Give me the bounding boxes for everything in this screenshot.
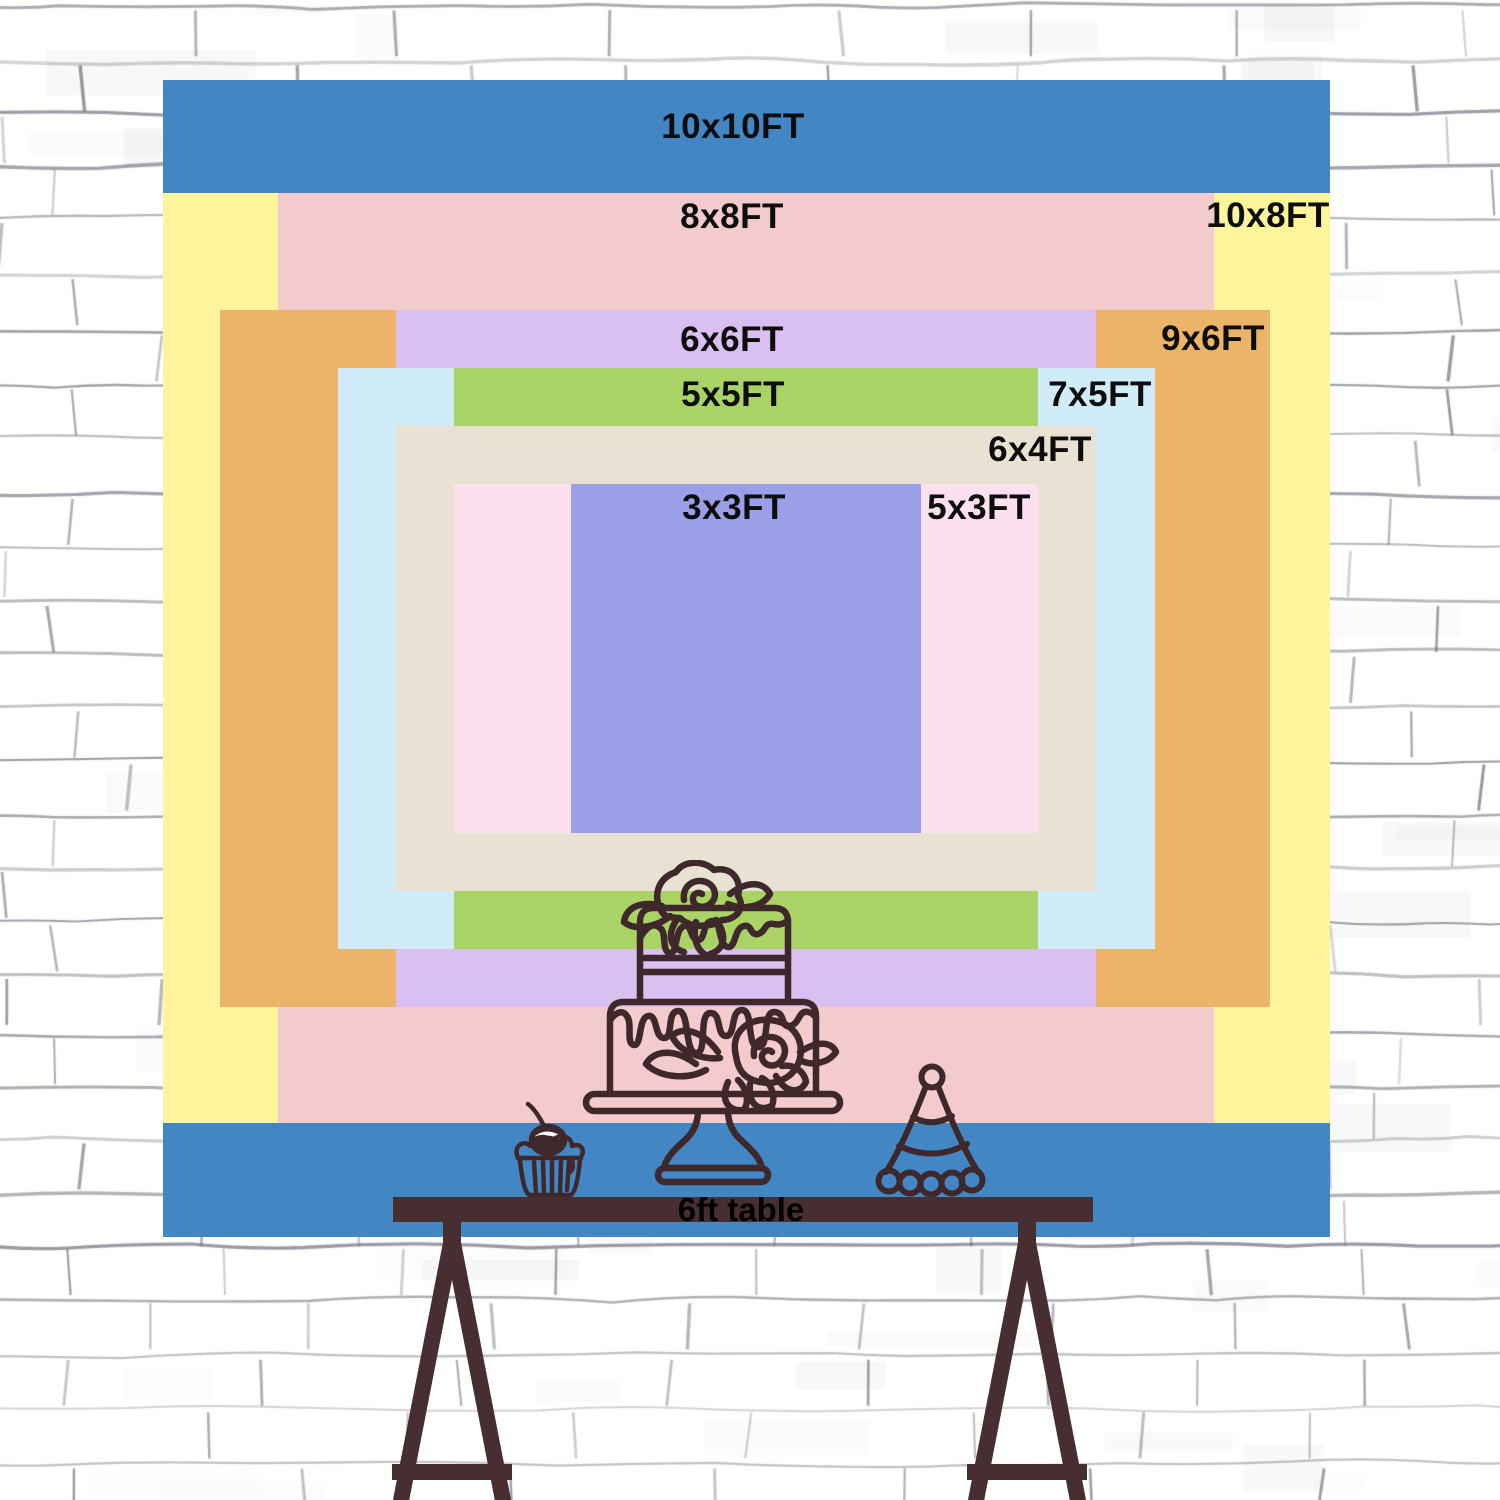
size-label-5x5: 5x5FT: [681, 375, 785, 415]
sawhorse-crossbar: [392, 1464, 512, 1480]
size-label-6x4: 6x4FT: [988, 430, 1092, 470]
table-label: 6ft table: [678, 1191, 805, 1229]
party-hat-illustration: [872, 1062, 997, 1202]
size-label-6x6: 6x6FT: [680, 320, 784, 360]
size-label-10x8: 10x8FT: [1206, 196, 1330, 236]
cupcake-illustration: [510, 1100, 590, 1198]
sawhorse-crossbar: [967, 1464, 1087, 1480]
product-size-diagram: 10x10FT 10x8FT 8x8FT 9x6FT 6x6FT 7x5FT 5…: [0, 0, 1500, 1500]
size-label-9x6: 9x6FT: [1161, 319, 1265, 359]
size-label-5x3: 5x3FT: [927, 488, 1031, 528]
backdrop-rect-3x3: [571, 484, 921, 833]
tiered-cake-illustration: [578, 860, 848, 1200]
size-label-10x10: 10x10FT: [661, 107, 805, 147]
size-label-3x3: 3x3FT: [682, 488, 786, 528]
size-label-7x5: 7x5FT: [1048, 375, 1152, 415]
size-label-8x8: 8x8FT: [680, 197, 784, 237]
